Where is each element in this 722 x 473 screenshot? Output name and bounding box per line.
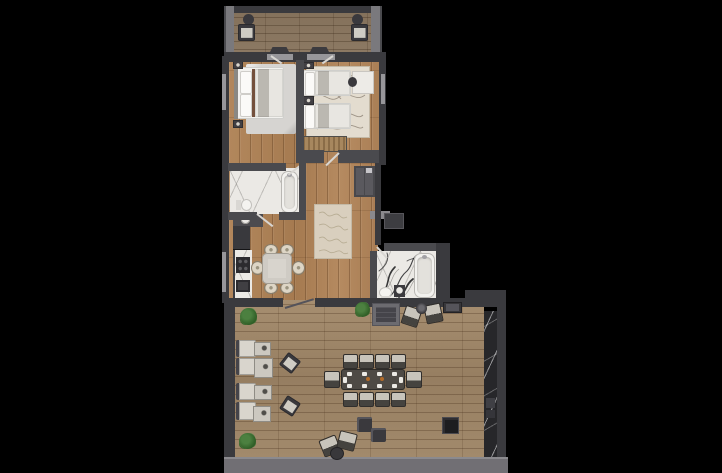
round-table [331, 448, 343, 459]
lounge-seat [236, 383, 256, 400]
dining-chair [265, 283, 277, 293]
side-table [254, 358, 273, 378]
balcony-left-railing [224, 6, 234, 58]
balcony-right-railing [371, 6, 382, 58]
round-table [416, 303, 427, 314]
bathtub-basin [417, 257, 432, 294]
centerpiece [380, 377, 384, 381]
balcony-armchair [238, 24, 255, 41]
terrace-dining-chair [359, 354, 374, 369]
side-table [254, 385, 272, 400]
lounge-seat [236, 340, 256, 357]
terrace-left-wall [224, 298, 235, 458]
dining-chair [281, 283, 293, 293]
terrace-dining-chair [343, 354, 358, 369]
double-bed-headboard [234, 67, 238, 119]
terrace-dining-chair [359, 392, 374, 407]
nightstand [233, 61, 243, 69]
terrace-dining-chair [375, 392, 390, 407]
bedroom2-bottom-wall [338, 150, 379, 163]
bed-duvet [315, 71, 350, 95]
bathtub-basin [284, 175, 295, 209]
terrace-bottom-edge [224, 457, 508, 473]
place-setting [362, 384, 367, 388]
side-table [254, 342, 271, 356]
bed-pillow [305, 72, 315, 96]
bed-duvet [255, 69, 283, 117]
balcony-top-wall [224, 6, 380, 13]
place-setting [377, 372, 382, 376]
terrace-dining-chair [324, 371, 340, 388]
hall-right-wall [375, 163, 381, 245]
toilet [241, 199, 252, 211]
nightstand [303, 62, 314, 69]
ottoman [371, 428, 386, 442]
bed-pillow [240, 71, 252, 94]
bedroom1-bottom-wall [228, 163, 286, 171]
place-setting [392, 372, 397, 376]
terrace-right-wall [497, 298, 506, 465]
bathroom2-top-wall [384, 243, 440, 251]
faucet [422, 255, 427, 259]
centerpiece [366, 377, 370, 381]
bed-pillow [305, 105, 315, 129]
side-table [253, 406, 271, 422]
marble-wall-panel [486, 410, 495, 418]
potted-plant [239, 433, 256, 449]
kitchen-sink [236, 280, 250, 292]
bedroom2-bottom-wall [300, 150, 324, 163]
ottoman [357, 417, 372, 432]
terrace-dining-chair [375, 354, 390, 369]
hall-rug [314, 204, 352, 259]
bathroom1-bottom-wall [228, 212, 257, 220]
place-setting [362, 372, 367, 376]
place-setting [347, 372, 352, 376]
tall-cabinets [233, 226, 250, 250]
wardrobe-box [366, 168, 372, 173]
marble-wall-panel [486, 398, 495, 408]
window [381, 74, 385, 104]
terrace-dining-chair [391, 392, 406, 407]
terrace-dining-chair [343, 392, 358, 407]
wardrobe-shelf [356, 168, 364, 195]
bed-pillow [240, 94, 252, 117]
terrace-dining-chair [406, 371, 422, 388]
bedroom-divider-wall [296, 60, 304, 163]
potted-plant [240, 308, 257, 325]
floor-plan-canvas [0, 0, 722, 473]
entry-steps [376, 307, 396, 322]
cooktop [236, 257, 250, 273]
place-setting [399, 377, 403, 383]
place-setting [347, 384, 352, 388]
utility-unit [384, 213, 404, 229]
fire-table-top [446, 304, 459, 311]
lounge-seat [236, 358, 256, 375]
bed-duvet [315, 104, 350, 128]
balcony-armchair [351, 24, 368, 41]
bathroom1-bottom-wall [279, 212, 306, 220]
place-setting [392, 384, 397, 388]
right-exterior-wall [379, 56, 386, 165]
kitchen-dining-table [262, 253, 292, 284]
sink-vanity [394, 285, 405, 297]
nightstand [303, 96, 314, 105]
dining-chair [293, 262, 304, 274]
nightstand [233, 120, 243, 128]
desk-chair [348, 77, 357, 87]
rug-line-pattern [315, 205, 351, 258]
terrace-dining-chair [391, 354, 406, 369]
place-setting [377, 384, 382, 388]
place-setting [343, 377, 347, 383]
marble-feature-wall [484, 311, 497, 458]
bedrooms-front-wall [224, 52, 386, 62]
window [222, 74, 226, 110]
window [222, 252, 226, 292]
planter-box [442, 417, 459, 434]
bathroom2-left-wall [370, 251, 377, 299]
potted-plant [355, 302, 370, 317]
